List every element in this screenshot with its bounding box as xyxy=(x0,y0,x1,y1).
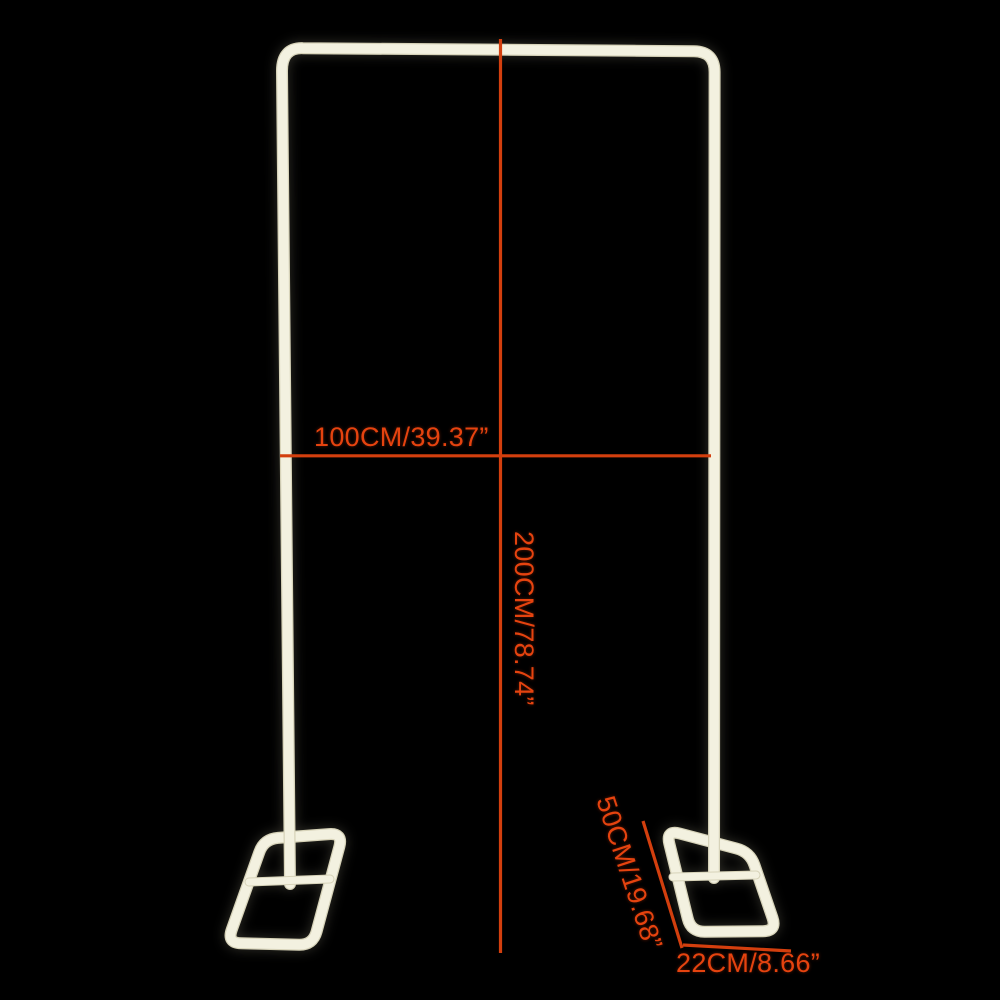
stand-frame xyxy=(282,48,715,884)
left-base-crossbar xyxy=(249,879,330,882)
stand-illustration xyxy=(0,0,1000,1000)
right-base xyxy=(669,833,774,932)
width-dimension-label: 100CM/39.37” xyxy=(314,424,489,451)
base-width-dimension-label: 22CM/8.66” xyxy=(676,950,820,977)
right-base-crossbar xyxy=(673,875,756,877)
product-dimension-diagram: 100CM/39.37” 200CM/78.74” 50CM/19.68” 22… xyxy=(0,0,1000,1000)
height-dimension-label: 200CM/78.74” xyxy=(510,531,537,706)
